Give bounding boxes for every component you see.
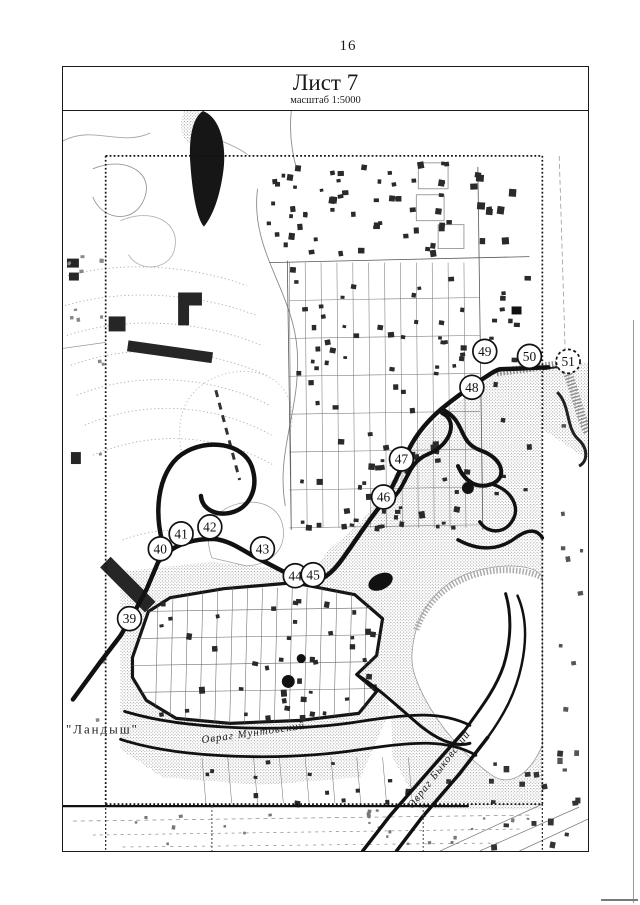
map-area: "Ландыш"Овраг МунтовскийОвраг Быковский … — [63, 111, 588, 851]
boundary-point-47: 47 — [390, 447, 414, 471]
map-canvas: "Ландыш"Овраг МунтовскийОвраг Быковский … — [63, 111, 588, 851]
boundary-point-51: 51 — [556, 349, 580, 373]
boundary-point-number: 44 — [289, 568, 303, 583]
boundary-point-number: 48 — [465, 380, 479, 395]
settlement-outline — [132, 583, 382, 724]
boundary-point-number: 47 — [395, 452, 409, 467]
boundary-point-number: 50 — [523, 349, 537, 364]
boundary-point-number: 43 — [256, 541, 270, 556]
boundary-point-number: 45 — [306, 567, 320, 582]
boundary-point-number: 40 — [154, 541, 168, 556]
boundary-point-45: 45 — [301, 563, 325, 587]
map-sheet-frame: Лист 7 масштаб 1:5000 — [62, 66, 589, 852]
boundary-point-number: 51 — [561, 354, 574, 369]
boundary-point-number: 46 — [377, 490, 391, 505]
boundary-point-49: 49 — [473, 339, 497, 363]
boundary-point-number: 42 — [203, 519, 216, 534]
boundary-point-number: 41 — [174, 526, 187, 541]
settlement-name-landysh: "Ландыш" — [66, 721, 139, 736]
boundary-point-43: 43 — [251, 537, 275, 561]
boundary-point-number: 39 — [123, 611, 137, 626]
page-number: 16 — [56, 38, 640, 55]
boundary-point-42: 42 — [198, 515, 222, 539]
boundary-point-40: 40 — [148, 537, 172, 561]
sheet-title-block: Лист 7 масштаб 1:5000 — [63, 67, 588, 111]
boundary-point-number: 49 — [478, 344, 492, 359]
scan-edge-foot-artifact — [601, 899, 638, 901]
boundary-point-41: 41 — [169, 522, 193, 546]
sheet-scale-note: масштаб 1:5000 — [63, 95, 588, 106]
boundary-point-50: 50 — [518, 344, 542, 368]
boundary-point-46: 46 — [372, 485, 396, 509]
boundary-point-39: 39 — [118, 607, 142, 631]
boundary-point-48: 48 — [460, 375, 484, 399]
sheet-title: Лист 7 — [63, 70, 588, 95]
scanned-document-page: { "page": { "number": "16" }, "sheet": {… — [0, 0, 640, 905]
scan-edge-artifact — [633, 320, 634, 903]
